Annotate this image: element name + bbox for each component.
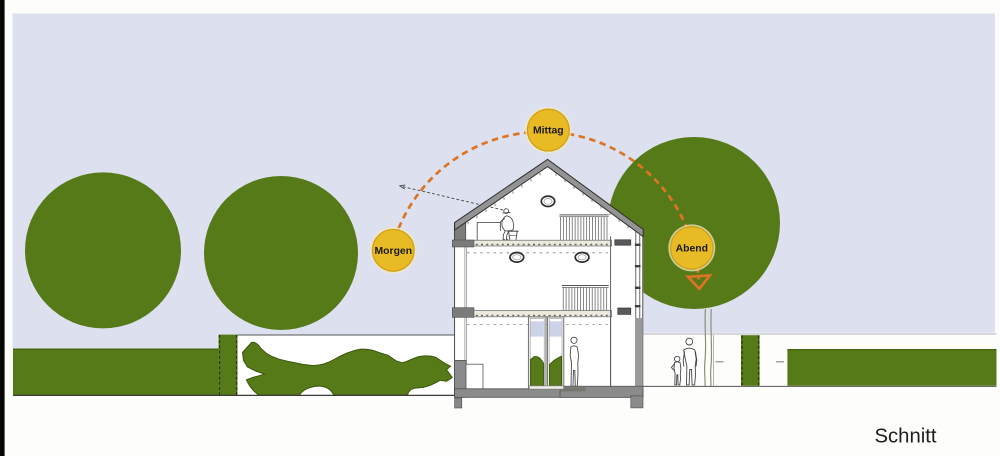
svg-text:Mittag: Mittag [533, 126, 564, 137]
svg-text:Morgen: Morgen [375, 246, 413, 257]
svg-text:Abend: Abend [676, 244, 708, 255]
svg-text:Schnitt: Schnitt [875, 426, 937, 448]
